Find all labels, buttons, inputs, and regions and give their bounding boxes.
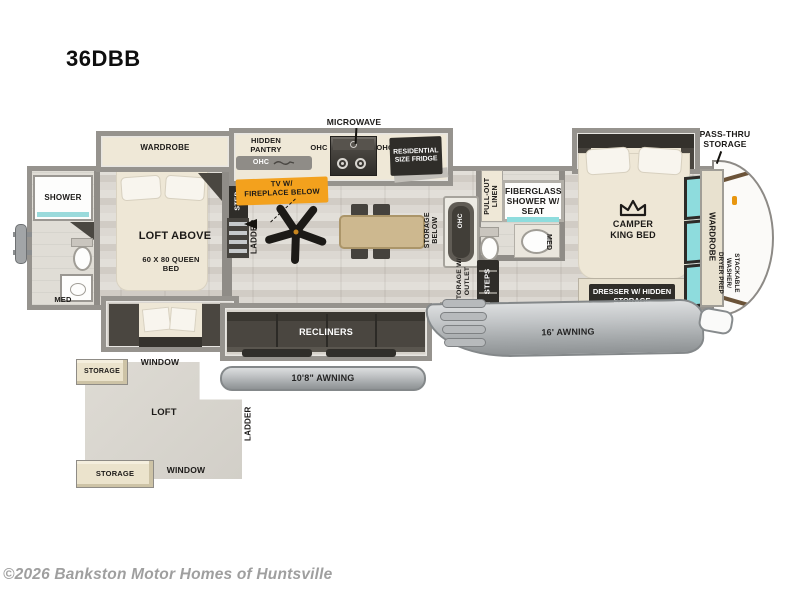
mid-med-label: MED: [544, 227, 552, 257]
stove: [330, 136, 377, 176]
rear-med-label: MED: [48, 296, 78, 305]
rear-bathroom-wall: [94, 171, 100, 305]
ceiling-fan-icon: [260, 196, 332, 268]
front-cap-marker: [732, 196, 737, 205]
bedroom-corner-cabinet: [198, 173, 222, 201]
page: { "title": "36DBB", "watermark": "©2026 …: [0, 0, 800, 600]
ohc-bar: OHC: [236, 156, 312, 170]
camper-king-label: CAMPER KING BED: [604, 219, 662, 240]
entry-step: [440, 312, 487, 321]
ladder-rung: [229, 231, 247, 235]
storage-outlet-label: STORAGE W/ OUTLET: [456, 258, 472, 304]
microwave-label: MICROWAVE: [318, 117, 390, 127]
entry-step: [444, 338, 486, 347]
ladder-rung: [229, 240, 247, 244]
crown-icon: [616, 198, 650, 220]
entry-step: [442, 325, 486, 334]
blanket: [169, 307, 197, 332]
fan-arrow: [244, 219, 257, 229]
loft-window-top-label: WINDOW: [134, 357, 186, 367]
loft-above-label: LOFT ABOVE: [134, 230, 216, 243]
rear-toilet: [73, 246, 92, 271]
pull-out-linen-label: PULL-OUT LINEN: [484, 174, 501, 218]
loft-storage-bottom: STORAGE: [76, 460, 154, 488]
loft-ladder-label: LADDER: [243, 402, 252, 446]
awning-rear: 10'8" AWNING: [220, 366, 426, 391]
loft-storage-top: STORAGE: [76, 359, 128, 385]
loft-storage-bottom-label: STORAGE: [96, 470, 134, 479]
recliners-label: RECLINERS: [281, 327, 371, 338]
storage-below-label: STORAGE BELOW: [424, 202, 441, 258]
floor-mat: [242, 349, 312, 357]
hidden-pantry-label: HIDDEN PANTRY: [240, 137, 292, 155]
steps-label: STEPS: [484, 262, 493, 300]
ohc-left-label: OHC: [306, 144, 332, 153]
dining-table: [339, 215, 425, 249]
king-pillow: [585, 146, 631, 175]
copyright-watermark: ©2026 Bankston Motor Homes of Huntsville: [3, 566, 332, 584]
shower-pan: [37, 212, 89, 217]
rear-sink: [70, 283, 86, 296]
loft-window-bottom-label: WINDOW: [158, 465, 214, 475]
mid-toilet: [480, 236, 499, 261]
floorplan-canvas: 36DBB SHOWER MED LOFT ABOVE 60 X 80 QUEE…: [0, 0, 800, 600]
washer-line2: DRYER PREP: [716, 241, 724, 305]
footboard: [139, 337, 202, 347]
floor-mat: [326, 349, 396, 357]
headboard: [578, 134, 694, 148]
sofa-divider: [375, 314, 377, 350]
washer-line1: STACKABLE WASHER/: [724, 241, 740, 305]
loft-storage-top-label: STORAGE: [84, 368, 120, 376]
island-ohc-label: OHC: [457, 208, 465, 234]
ladder-rung: [229, 249, 247, 253]
slide-side: [109, 304, 139, 346]
entry-step: [442, 299, 486, 308]
fridge-label: RESIDENTIAL SIZE FRIDGE: [389, 136, 442, 176]
queen-pillow: [120, 175, 162, 202]
pass-thru-label: PASS-THRU STORAGE: [694, 129, 756, 149]
king-pillow: [637, 146, 683, 175]
burner-dot: [359, 162, 362, 165]
awning-front-label: 16' AWNING: [513, 326, 623, 339]
squiggle-icon: [273, 159, 295, 167]
ladder-rung: [15, 224, 27, 264]
entry-steps: [440, 299, 488, 351]
rear-shower-label: SHOWER: [34, 193, 92, 202]
wardrobe-rear-label: WARDROBE: [106, 143, 224, 152]
queen-bed-label: 60 X 80 QUEEN BED: [140, 256, 202, 274]
fiberglass-shower-label: FIBERGLASS SHOWER W/ SEAT: [505, 186, 561, 216]
queen-foot-slide: [101, 296, 239, 352]
model-title: 36DBB: [66, 46, 141, 72]
washer-dryer-label: STACKABLE WASHER/ DRYER PREP: [718, 241, 740, 305]
sofa-divider: [276, 314, 278, 350]
blanket: [142, 307, 171, 333]
loft-label: LOFT: [138, 407, 190, 418]
ohc-label: OHC: [253, 159, 269, 167]
burner-dot: [341, 162, 344, 165]
shower-pan: [507, 217, 559, 222]
fiberglass-shower: FIBERGLASS SHOWER W/ SEAT: [502, 180, 564, 222]
awning-rear-label: 10'8" AWNING: [292, 373, 355, 384]
